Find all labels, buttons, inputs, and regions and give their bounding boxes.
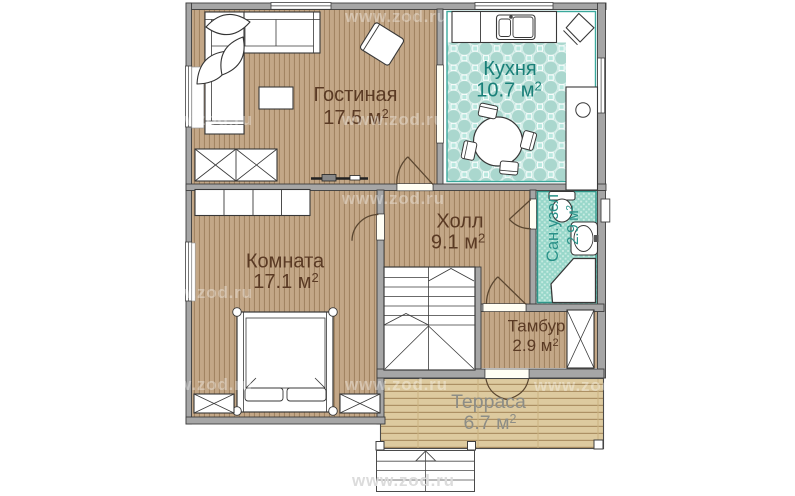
- svg-text:Кухня: Кухня: [483, 58, 537, 80]
- svg-text:www.zod.ru: www.zod.ru: [341, 110, 445, 129]
- svg-text:17.1 м2: 17.1 м2: [253, 270, 318, 293]
- svg-text:www.zod.ru: www.zod.ru: [149, 283, 253, 302]
- svg-text:9.1 м2: 9.1 м2: [431, 231, 485, 254]
- svg-text:Гостиная: Гостиная: [314, 84, 398, 106]
- svg-text:www.zod.ru: www.zod.ru: [351, 471, 455, 490]
- svg-text:Холл: Холл: [436, 211, 483, 233]
- svg-text:www.zod.ru: www.zod.ru: [149, 110, 253, 129]
- svg-text:Тамбур: Тамбур: [508, 317, 566, 336]
- svg-text:2.9 м2: 2.9 м2: [565, 205, 582, 245]
- svg-text:Терраса: Терраса: [451, 391, 526, 413]
- svg-text:2.9 м2: 2.9 м2: [512, 336, 558, 355]
- svg-text:www.zod.ru: www.zod.ru: [344, 7, 448, 26]
- svg-text:www.zod.ru: www.zod.ru: [344, 375, 448, 394]
- svg-text:Сан.узел: Сан.узел: [544, 194, 562, 262]
- svg-text:10.7 м2: 10.7 м2: [476, 79, 541, 102]
- svg-text:6.7 м2: 6.7 м2: [464, 412, 517, 434]
- svg-text:www.zod.ru: www.zod.ru: [149, 375, 253, 394]
- svg-text:www.zod.ru: www.zod.ru: [533, 376, 637, 395]
- svg-text:www.zod.ru: www.zod.ru: [341, 189, 445, 208]
